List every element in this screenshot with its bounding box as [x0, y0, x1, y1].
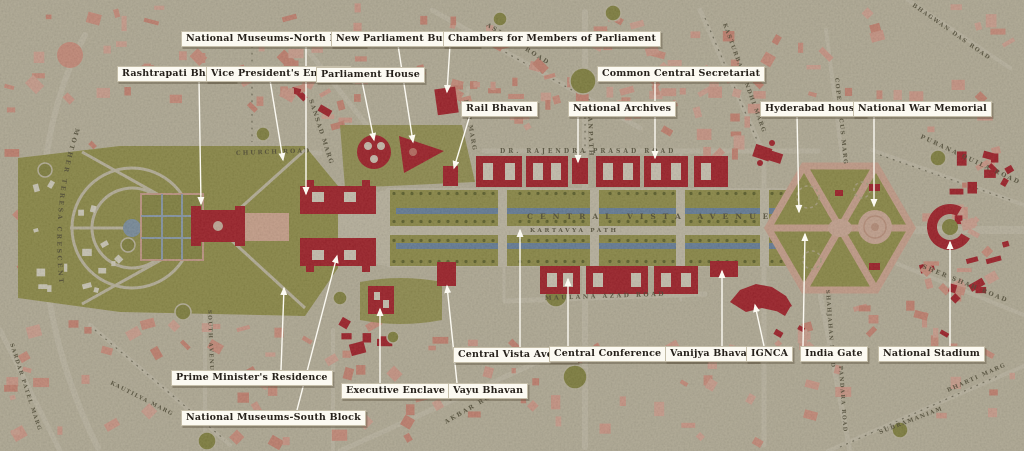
map-label-national-stadium: National Stadium — [878, 346, 985, 362]
map-label-executive-enclave: Executive Enclave — [341, 383, 450, 399]
map-label-hyderabad-house: Hyderabad house — [760, 101, 866, 117]
map-label-national-museums-south-block: National Museums-South Block — [181, 410, 366, 426]
central-vista-map: MOTHER TERESA CRESCENTCHURCH ROADSANSAD … — [0, 0, 1024, 451]
map-label-prime-ministers-residence: Prime Minister's Residence — [171, 370, 333, 386]
street-name-dr-rajendra-prasad-road: DR. RAJENDRA PRASAD ROAD — [500, 148, 676, 155]
street-name-central-vista-avenue-text: CENTRAL VISTA AVENUE — [527, 212, 775, 221]
map-label-rail-bhavan: Rail Bhavan — [461, 101, 538, 117]
map-label-national-archives: National Archives — [568, 101, 676, 117]
map-label-india-gate: India Gate — [800, 346, 868, 362]
map-label-chambers-for-members-of-parliament: Chambers for Members of Parliament — [443, 31, 661, 47]
map-label-vayu-bhavan: Vayu Bhavan — [448, 383, 528, 399]
map-label-vanijya-bhavan: Vanijya Bhavan — [665, 346, 759, 362]
map-label-parliament-house: Parliament House — [316, 67, 425, 83]
map-label-common-central-secretariat: Common Central Secretariat — [597, 66, 765, 82]
map-label-ignca: IGNCA — [746, 346, 793, 362]
map-label-national-war-memorial: National War Memorial — [853, 101, 992, 117]
street-name-kartavya-path-text: KARTAVYA PATH — [530, 228, 619, 234]
